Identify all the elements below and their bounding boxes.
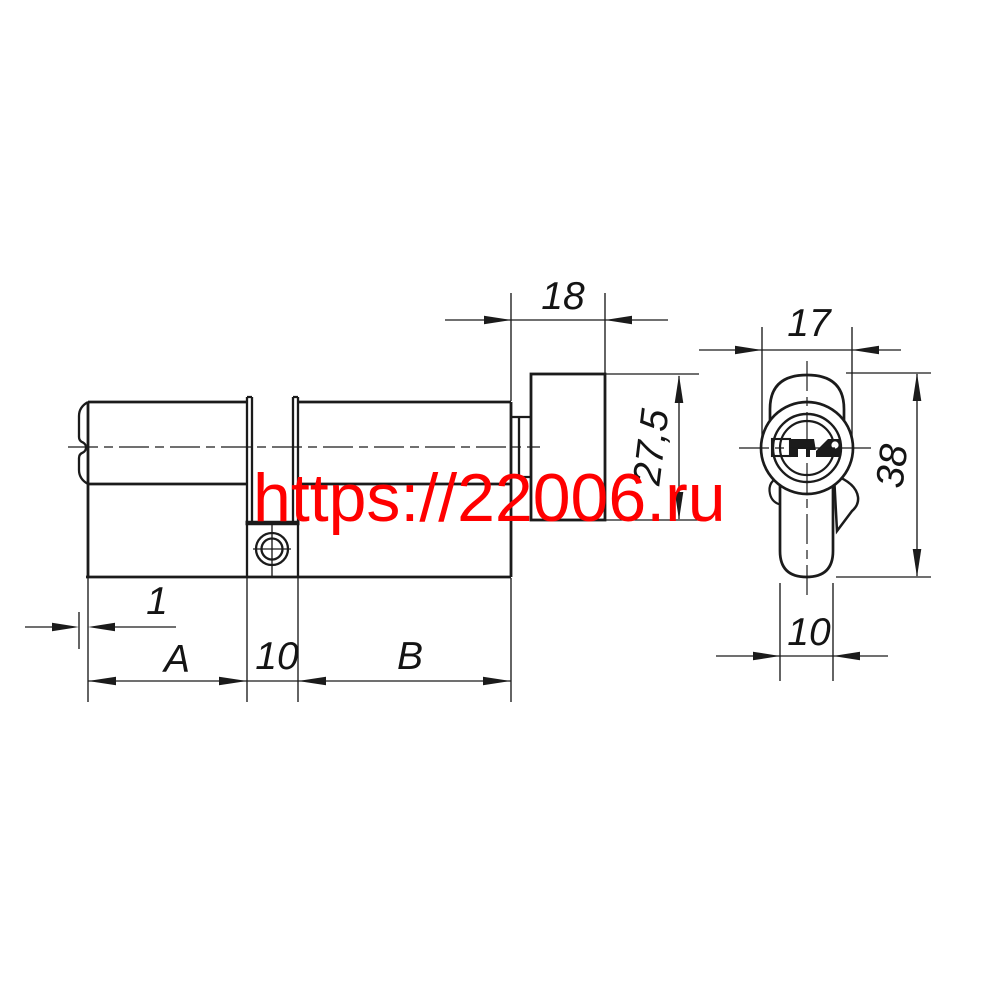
technical-drawing-svg: 18 27,5 1 A 10 B 17 38: [0, 0, 1000, 1000]
front-view: [739, 361, 875, 597]
dim-body-diameter-label: 17: [787, 302, 832, 345]
dimension-total-height: 38: [836, 373, 931, 577]
dim-plug-protrusion-label: 1: [146, 580, 168, 623]
dimension-plug-protrusion: 1: [25, 580, 176, 649]
watermark-url: https://22006.ru: [253, 460, 726, 536]
dim-half-b-label: B: [397, 635, 423, 678]
dim-body-width-label: 10: [787, 611, 831, 654]
dim-half-a-label: A: [162, 638, 190, 681]
cam-gap-left-wall: [247, 397, 252, 577]
dim-total-height-label: 38: [869, 442, 917, 491]
cylinder-technical-drawing: 18 27,5 1 A 10 B 17 38: [0, 0, 1000, 1000]
dimension-body-width: 10: [716, 583, 888, 681]
dim-knob-length-label: 18: [541, 275, 585, 318]
dim-cam-gap-label: 10: [255, 635, 299, 678]
